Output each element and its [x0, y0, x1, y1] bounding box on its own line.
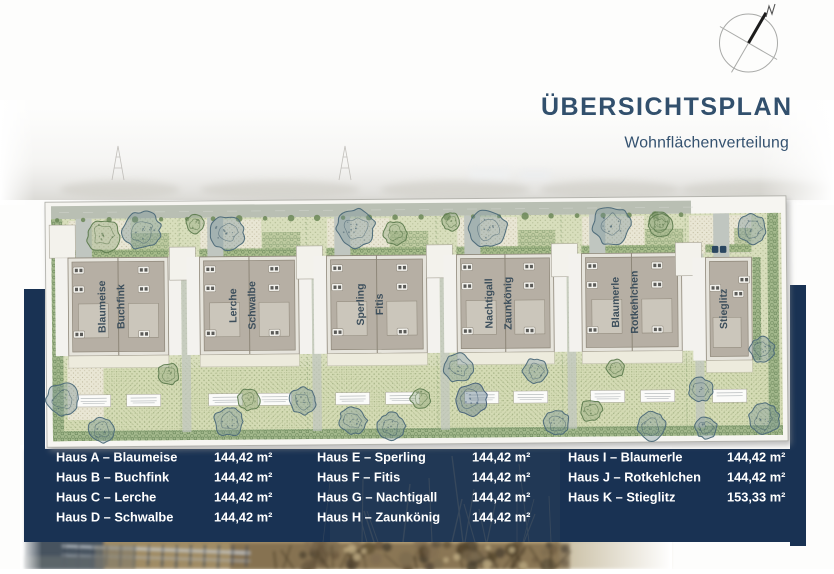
svg-text:144,42 m²: 144,42 m² — [472, 470, 530, 485]
svg-text:Haus H – Zaunkönig: Haus H – Zaunkönig — [317, 510, 440, 525]
svg-text:144,42 m²: 144,42 m² — [727, 450, 785, 465]
svg-text:Buchfink: Buchfink — [115, 284, 127, 329]
svg-text:144,42 m²: 144,42 m² — [472, 510, 530, 525]
svg-text:144,42 m²: 144,42 m² — [214, 470, 272, 485]
svg-text:Haus J – Rotkehlchen: Haus J – Rotkehlchen — [568, 470, 701, 485]
svg-text:Haus I – Blaumerle: Haus I – Blaumerle — [568, 450, 683, 465]
svg-text:Lerche: Lerche — [227, 288, 239, 323]
svg-text:Blaumeise: Blaumeise — [96, 280, 108, 333]
svg-text:Sperling: Sperling — [355, 283, 367, 325]
svg-text:144,42 m²: 144,42 m² — [214, 490, 272, 505]
svg-text:Haus E – Sperling: Haus E – Sperling — [317, 450, 426, 465]
svg-text:144,42 m²: 144,42 m² — [214, 450, 272, 465]
svg-text:Wohnflächenverteilung: Wohnflächenverteilung — [624, 135, 789, 152]
svg-text:153,33 m²: 153,33 m² — [727, 490, 785, 505]
svg-text:Haus B – Buchfink: Haus B – Buchfink — [56, 470, 170, 485]
svg-text:Fitis: Fitis — [374, 293, 386, 315]
svg-text:Rotkehlchen: Rotkehlchen — [629, 271, 642, 334]
svg-text:Haus F – Fitis: Haus F – Fitis — [317, 470, 400, 485]
svg-text:Schwalbe: Schwalbe — [246, 281, 258, 330]
svg-text:ÜBERSICHTSPLAN: ÜBERSICHTSPLAN — [541, 92, 793, 121]
svg-text:144,42 m²: 144,42 m² — [214, 510, 272, 525]
svg-text:144,42 m²: 144,42 m² — [472, 450, 530, 465]
svg-text:Haus K – Stieglitz: Haus K – Stieglitz — [568, 490, 675, 505]
svg-text:Nachtigall: Nachtigall — [483, 278, 495, 328]
svg-text:Stieglitz: Stieglitz — [718, 289, 730, 329]
svg-text:Zaunkönig: Zaunkönig — [502, 277, 514, 330]
svg-text:Haus C – Lerche: Haus C – Lerche — [56, 490, 156, 505]
svg-text:Blaumerle: Blaumerle — [610, 277, 622, 328]
svg-text:Haus G – Nachtigall: Haus G – Nachtigall — [317, 490, 437, 505]
svg-text:Haus A – Blaumeise: Haus A – Blaumeise — [56, 450, 177, 465]
svg-text:144,42 m²: 144,42 m² — [727, 470, 785, 485]
svg-text:Haus D – Schwalbe: Haus D – Schwalbe — [56, 510, 173, 525]
svg-text:144,42 m²: 144,42 m² — [472, 490, 530, 505]
